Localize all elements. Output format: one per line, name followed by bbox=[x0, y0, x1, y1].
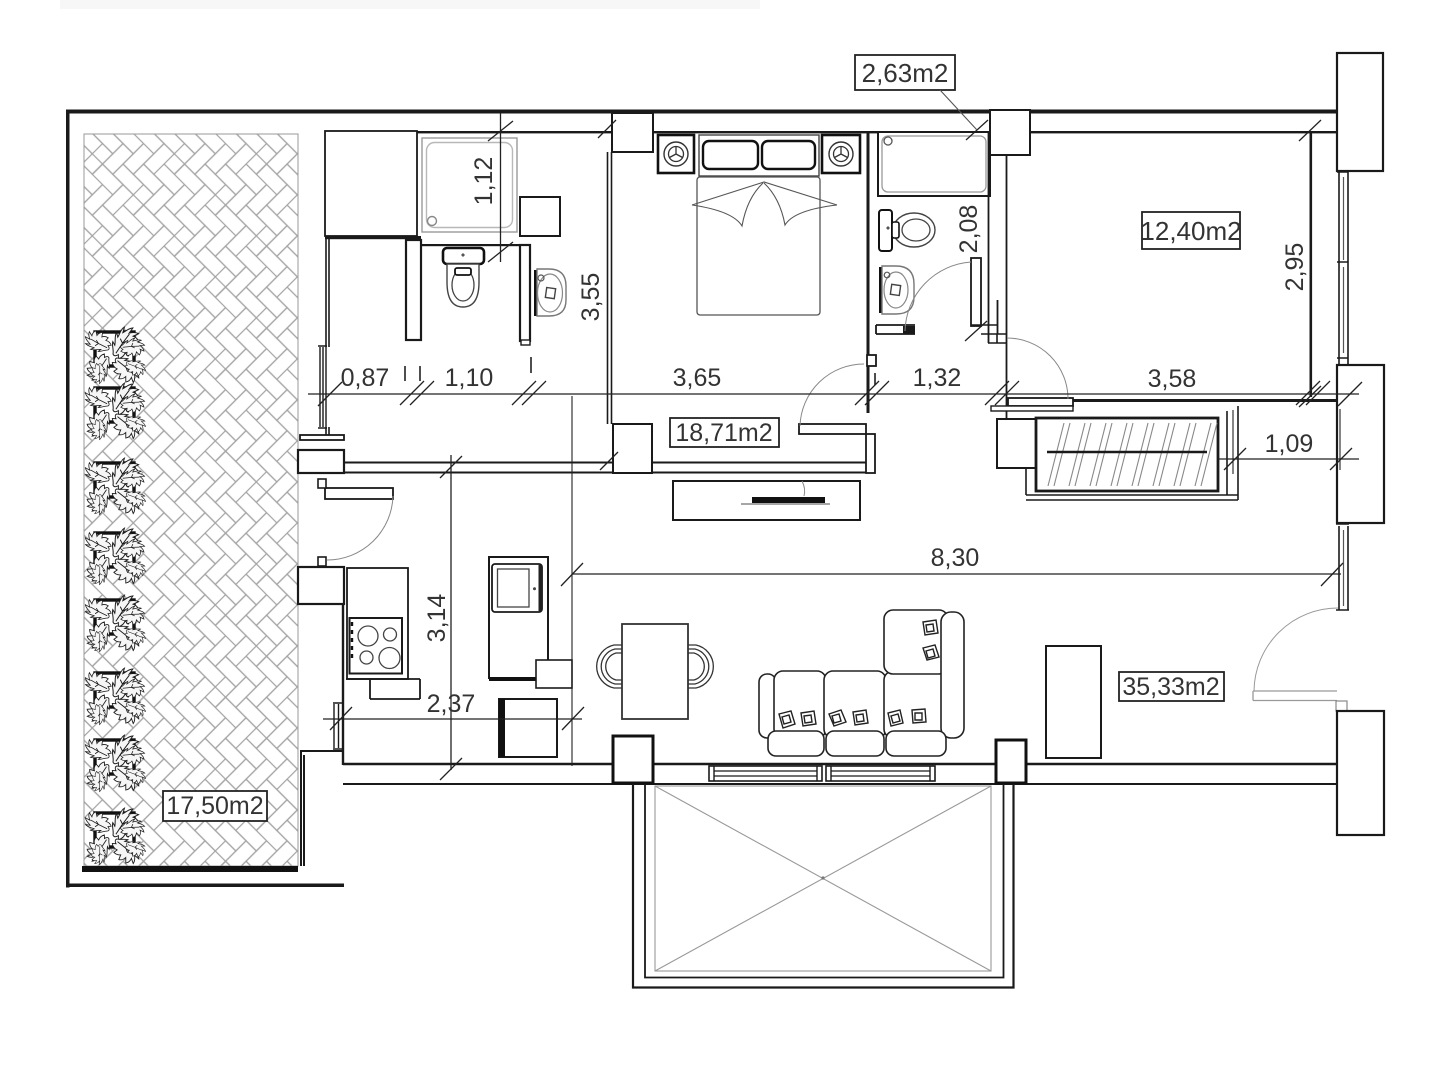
svg-text:1,09: 1,09 bbox=[1265, 430, 1314, 458]
svg-text:17,50m2: 17,50m2 bbox=[166, 792, 263, 820]
svg-text:1,32: 1,32 bbox=[913, 364, 962, 392]
svg-text:8,30: 8,30 bbox=[931, 544, 980, 572]
svg-text:35,33m2: 35,33m2 bbox=[1122, 673, 1219, 701]
svg-text:3,65: 3,65 bbox=[673, 364, 722, 392]
svg-text:1,10: 1,10 bbox=[445, 364, 494, 392]
svg-text:0,87: 0,87 bbox=[341, 364, 390, 392]
svg-text:2,08: 2,08 bbox=[955, 205, 983, 254]
svg-text:1,12: 1,12 bbox=[470, 157, 498, 206]
svg-text:18,71m2: 18,71m2 bbox=[675, 419, 772, 447]
svg-text:3,14: 3,14 bbox=[423, 594, 451, 643]
svg-text:2,63m2: 2,63m2 bbox=[862, 58, 949, 88]
svg-text:2,95: 2,95 bbox=[1281, 243, 1309, 292]
svg-text:3,58: 3,58 bbox=[1148, 365, 1197, 393]
svg-text:3,55: 3,55 bbox=[577, 273, 605, 322]
svg-text:12,40m2: 12,40m2 bbox=[1140, 216, 1241, 246]
svg-text:2,37: 2,37 bbox=[427, 690, 476, 718]
